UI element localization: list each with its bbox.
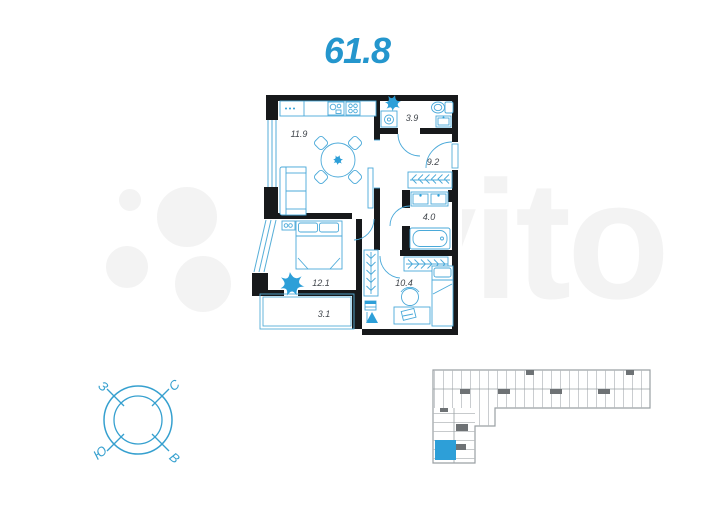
bathtub-icon	[410, 228, 450, 249]
compass-label-south: Ю	[90, 443, 110, 463]
toilet-icon	[432, 102, 454, 113]
compass-label-west: З	[96, 378, 112, 395]
compass-label-east: В	[166, 449, 183, 466]
room-label-room: 10.4	[395, 278, 413, 288]
watermark-circle-medium	[105, 245, 149, 289]
entrance-door	[452, 144, 458, 168]
room-label-bathroom: 4.0	[423, 212, 436, 222]
compass-label-north: С	[166, 376, 183, 394]
room-label-bathroom-small: 3.9	[406, 113, 419, 123]
building-plan	[430, 364, 675, 482]
stove-icon	[346, 102, 360, 115]
watermark-circle-big	[174, 255, 232, 313]
dining-table	[313, 135, 363, 185]
watermark-circle-large	[156, 186, 218, 248]
room-label-balcony: 3.1	[318, 309, 331, 319]
wardrobe-column	[364, 250, 378, 296]
sofa	[280, 167, 306, 215]
sink-icon	[436, 116, 451, 127]
avito-watermark-logo	[90, 160, 250, 320]
double-bed	[296, 221, 342, 269]
total-area-title: 61.8	[252, 30, 462, 72]
nightstand	[282, 221, 295, 230]
room-label-bedroom: 12.1	[312, 278, 330, 288]
room-label-hallway: 9.2	[427, 157, 440, 167]
double-sink-icon	[411, 192, 448, 206]
kitchen-counter	[280, 101, 376, 116]
compass-spokes	[107, 389, 169, 451]
compass-rose: З С Ю В	[86, 366, 192, 474]
single-bed	[432, 266, 453, 326]
room-label-kitchen-living: 11.9	[291, 129, 308, 139]
shelf-unit	[365, 301, 376, 310]
tv-console	[368, 168, 373, 208]
watermark-circle-small	[118, 188, 142, 212]
highlighted-unit	[435, 440, 456, 460]
washing-machine-icon	[381, 111, 397, 127]
kitchen-sink-icon	[328, 102, 344, 115]
hallway-wardrobe	[408, 172, 452, 188]
floor-plan: 11.9 3.9 9.2 4.0 12.1 3.1 10.4	[252, 90, 462, 340]
desk	[394, 307, 430, 324]
